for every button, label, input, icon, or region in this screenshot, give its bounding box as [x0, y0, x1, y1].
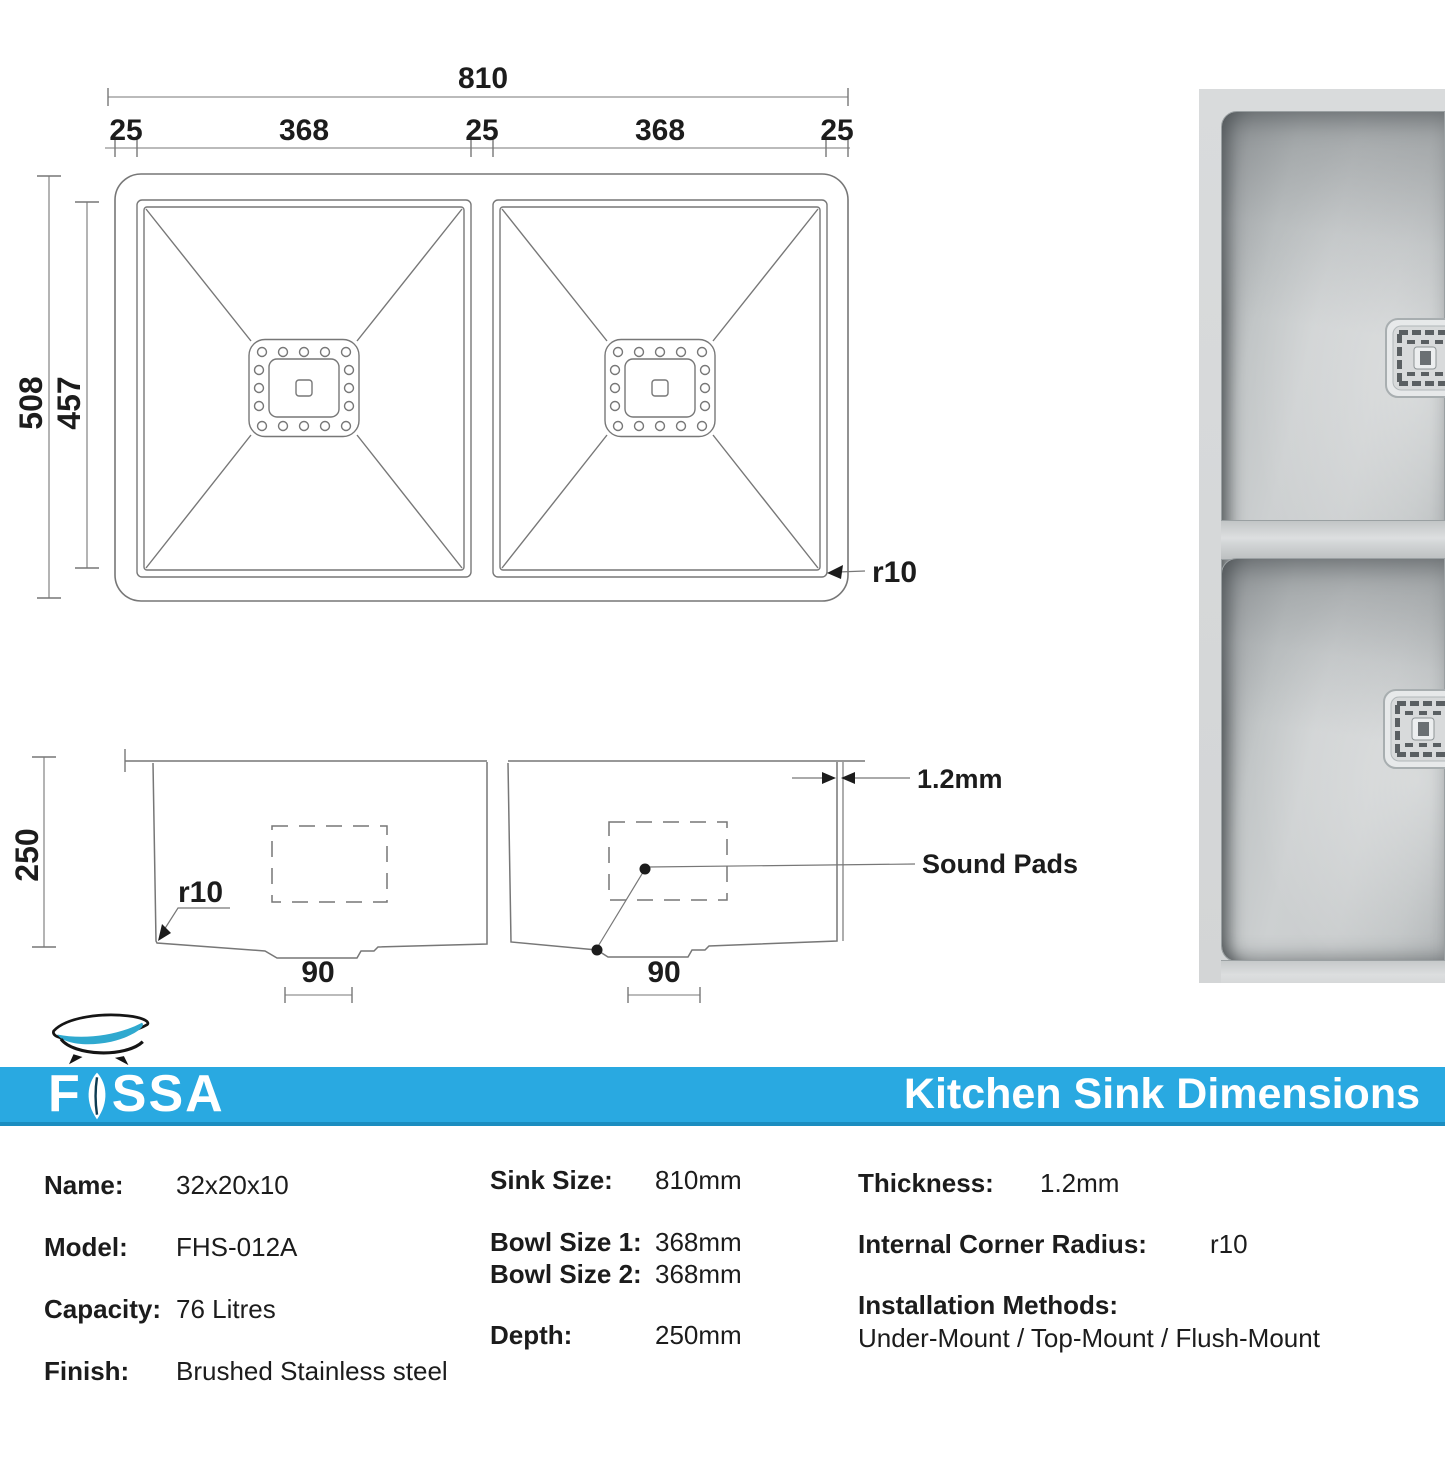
spec-value: 76 Litres — [176, 1294, 276, 1324]
spec-value: 810mm — [655, 1165, 742, 1195]
side-view — [32, 749, 915, 1003]
dim-label-seg-4: 25 — [820, 114, 853, 147]
spec-value: 250mm — [655, 1320, 742, 1350]
spec-row-finish: Finish:Brushed Stainless steel — [44, 1356, 448, 1387]
spec-value: 32x20x10 — [176, 1170, 289, 1200]
dim-label-seg-0: 25 — [109, 114, 142, 147]
sink-photo: FOSSA — [1199, 89, 1445, 983]
spec-row-capacity: Capacity:76 Litres — [44, 1294, 276, 1325]
leaf-icon — [83, 1070, 111, 1122]
drain-bowl2 — [605, 340, 715, 437]
dim-label-total-width: 810 — [458, 62, 508, 95]
spec-label: Model: — [44, 1232, 176, 1263]
side-view-labels: 250 1.2mm Sound Pads r10 90 90 — [9, 764, 1078, 989]
spec-value: FHS-012A — [176, 1232, 297, 1262]
spec-value: Brushed Stainless steel — [176, 1356, 448, 1386]
brand-logo-text: FSSA — [48, 1067, 225, 1122]
spec-label: Thickness: — [858, 1168, 1040, 1199]
spec-label: Name: — [44, 1170, 176, 1201]
spec-row-installation-value: Under-Mount / Top-Mount / Flush-Mount — [858, 1323, 1320, 1354]
spec-row-sink-size: Sink Size:810mm — [490, 1165, 742, 1196]
spec-row-depth: Depth:250mm — [490, 1320, 742, 1351]
product-sheet: { "colors": { "banner_blue": "#29a9e1", … — [0, 0, 1445, 1471]
drain-bowl1 — [249, 340, 359, 437]
banner-title: Kitchen Sink Dimensions — [904, 1067, 1420, 1122]
corner-radius-label-top-view: r10 — [872, 556, 917, 589]
spec-value: 1.2mm — [1040, 1168, 1119, 1198]
corner-radius-label-side-view: r10 — [178, 876, 223, 909]
dim-label-seg-2: 25 — [465, 114, 498, 147]
spec-row-name: Name:32x20x10 — [44, 1170, 289, 1201]
spec-label: Capacity: — [44, 1294, 176, 1325]
dim-label-drain-right: 90 — [647, 956, 680, 989]
fossa-bathtub-icon — [44, 1012, 166, 1066]
spec-label: Sink Size: — [490, 1165, 655, 1196]
sound-pads-label: Sound Pads — [922, 849, 1078, 879]
spec-value: 368mm — [655, 1259, 742, 1289]
photo-bottom-rim — [1221, 960, 1445, 983]
dim-label-inner-height: 457 — [51, 376, 87, 429]
spec-row-bowl-size-2: Bowl Size 2:368mm — [490, 1259, 742, 1290]
spec-label: Internal Corner Radius: — [858, 1229, 1210, 1260]
dim-label-seg-3: 368 — [635, 114, 685, 147]
spec-value: Under-Mount / Top-Mount / Flush-Mount — [858, 1323, 1320, 1353]
dim-label-thickness: 1.2mm — [917, 764, 1003, 794]
spec-label: Finish: — [44, 1356, 176, 1387]
spec-row-installation-label: Installation Methods: — [858, 1290, 1118, 1321]
spec-label: Depth: — [490, 1320, 655, 1351]
photo-drain-bowl2 — [1383, 689, 1445, 769]
photo-divider — [1221, 520, 1445, 560]
technical-drawing: 810 25 368 25 368 25 508 457 r10 — [0, 0, 1100, 1010]
spec-row-model: Model:FHS-012A — [44, 1232, 297, 1263]
spec-row-bowl-size-1: Bowl Size 1:368mm — [490, 1227, 742, 1258]
spec-value: r10 — [1210, 1229, 1248, 1259]
spec-label: Bowl Size 2: — [490, 1259, 655, 1290]
top-view — [37, 88, 865, 601]
spec-row-thickness: Thickness:1.2mm — [858, 1168, 1119, 1199]
dim-label-seg-1: 368 — [279, 114, 329, 147]
spec-value: 368mm — [655, 1227, 742, 1257]
top-view-labels: 810 25 368 25 368 25 508 457 r10 — [13, 62, 917, 589]
spec-label: Installation Methods: — [858, 1290, 1118, 1321]
dim-label-depth: 250 — [9, 828, 45, 881]
dim-label-outer-height: 508 — [13, 376, 49, 429]
photo-drain-bowl1 — [1385, 318, 1445, 398]
spec-row-corner-radius: Internal Corner Radius:r10 — [858, 1229, 1248, 1260]
dim-label-drain-left: 90 — [301, 956, 334, 989]
brand-letters-ssa: SSA — [112, 1065, 225, 1123]
spec-label: Bowl Size 1: — [490, 1227, 655, 1258]
brand-letter-f: F — [48, 1065, 82, 1123]
